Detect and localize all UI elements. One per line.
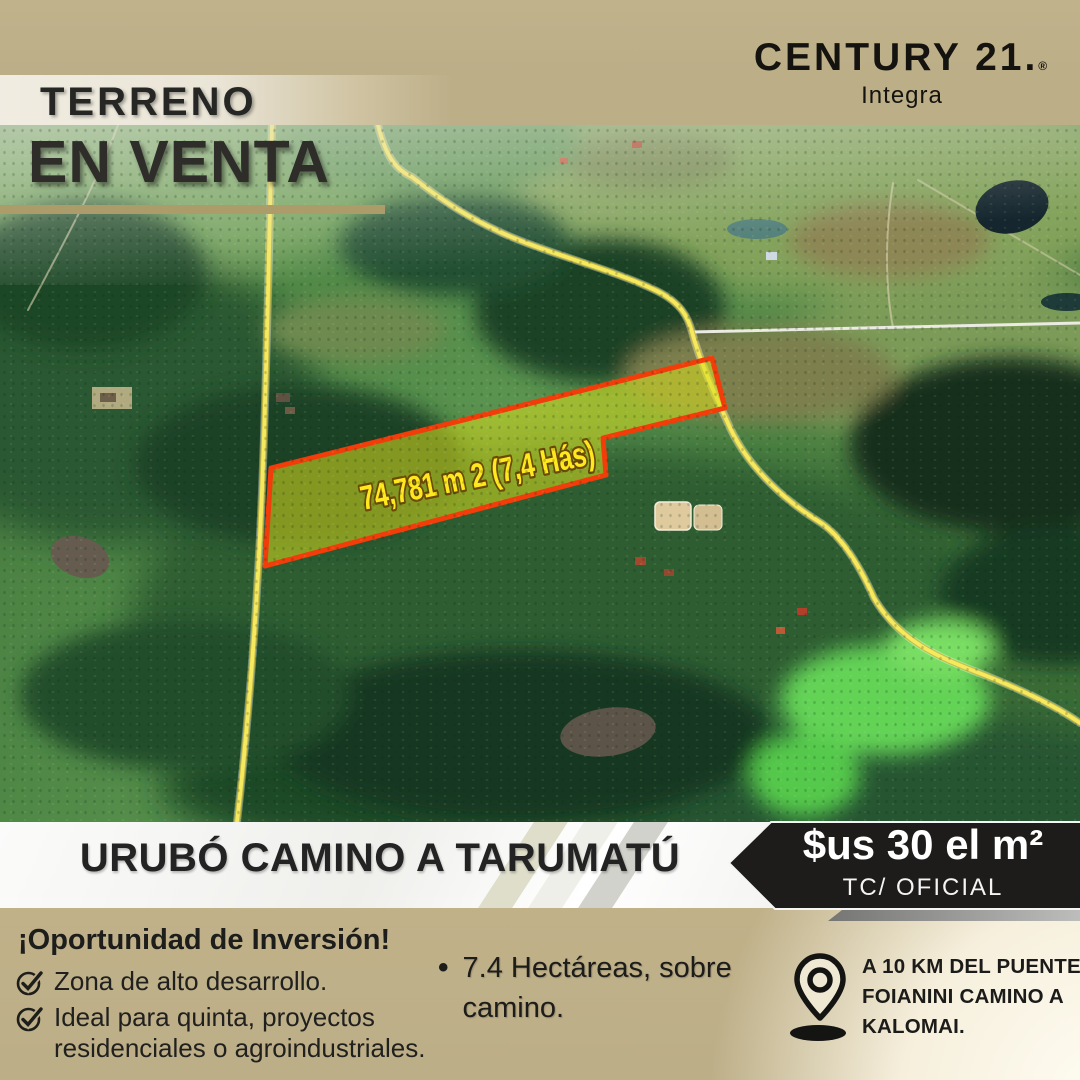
opportunity-title: ¡Oportunidad de Inversión!: [18, 924, 390, 957]
distance-note: A 10 KM DEL PUENTE FOIANINI CAMINO A KAL…: [862, 952, 1080, 1042]
list-item: Zona de alto desarrollo.: [15, 966, 435, 997]
area-bullet-label: 7.4 Hectáreas, sobre camino.: [463, 948, 763, 1028]
benefits-checklist: Zona de alto desarrollo. Ideal para quin…: [15, 966, 435, 1070]
brand-logo: CENTURY 21.®: [742, 36, 1062, 80]
badge-shadow-bar: [828, 910, 1080, 921]
page-title: EN VENTA: [28, 128, 330, 196]
brand-block: CENTURY 21.® Integra: [742, 36, 1062, 110]
price-text: $us 30 el m²: [773, 821, 1073, 869]
check-circle-icon: [15, 1003, 45, 1033]
list-item-label: Zona de alto desarrollo.: [54, 966, 435, 997]
price-badge: $us 30 el m² TC/ OFICIAL: [713, 810, 1080, 910]
registered-mark: ®: [1038, 59, 1050, 73]
satellite-map: 74,781 m 2 (7,4 Hás): [0, 125, 1080, 822]
brand-logo-text: CENTURY 21.: [754, 36, 1038, 79]
bullet-dot: •: [438, 948, 449, 1028]
exchange-note: TC/ OFICIAL: [773, 874, 1073, 902]
location-title: URUBÓ CAMINO A TARUMATÚ: [40, 836, 720, 881]
brand-agency: Integra: [742, 82, 1062, 110]
real-estate-poster: TERRENO CENTURY 21.® Integra: [0, 0, 1080, 1080]
area-bullet-item: • 7.4 Hectáreas, sobre camino.: [438, 948, 768, 1028]
details-section: ¡Oportunidad de Inversión! Zona de alto …: [0, 908, 1080, 1080]
kicker-text: TERRENO: [40, 80, 257, 125]
gold-underline: [0, 205, 385, 214]
check-circle-icon: [15, 967, 45, 997]
list-item: Ideal para quinta, proyectos residencial…: [15, 1002, 435, 1064]
map-svg: 74,781 m 2 (7,4 Hás): [0, 125, 1080, 822]
list-item-label: Ideal para quinta, proyectos residencial…: [54, 1002, 435, 1064]
location-pin-icon: [788, 950, 852, 1042]
